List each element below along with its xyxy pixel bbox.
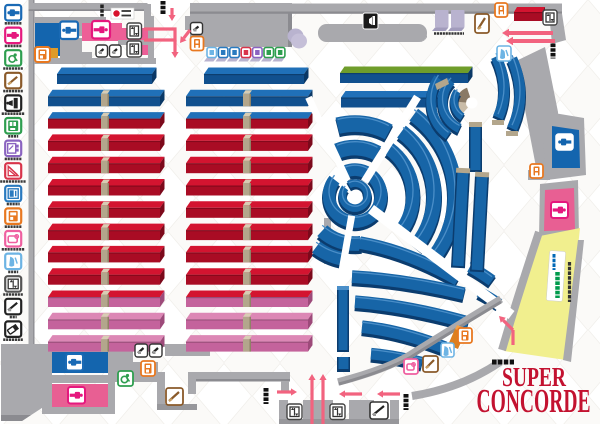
svg-text:CONCORDE: CONCORDE bbox=[477, 383, 591, 420]
